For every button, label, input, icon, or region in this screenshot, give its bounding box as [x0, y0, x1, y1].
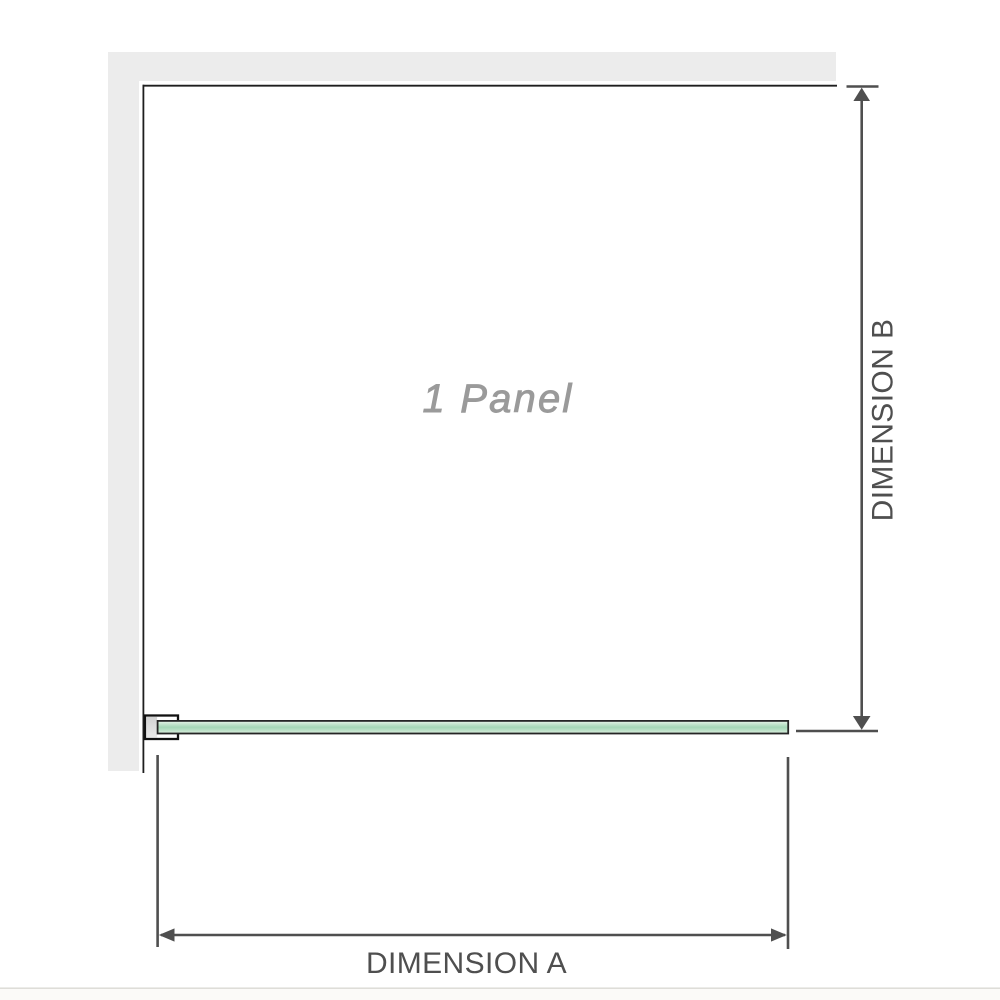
svg-text:1 Panel: 1 Panel	[422, 377, 573, 421]
svg-text:DIMENSION A: DIMENSION A	[366, 947, 567, 980]
svg-text:DIMENSION B: DIMENSION B	[867, 319, 900, 522]
